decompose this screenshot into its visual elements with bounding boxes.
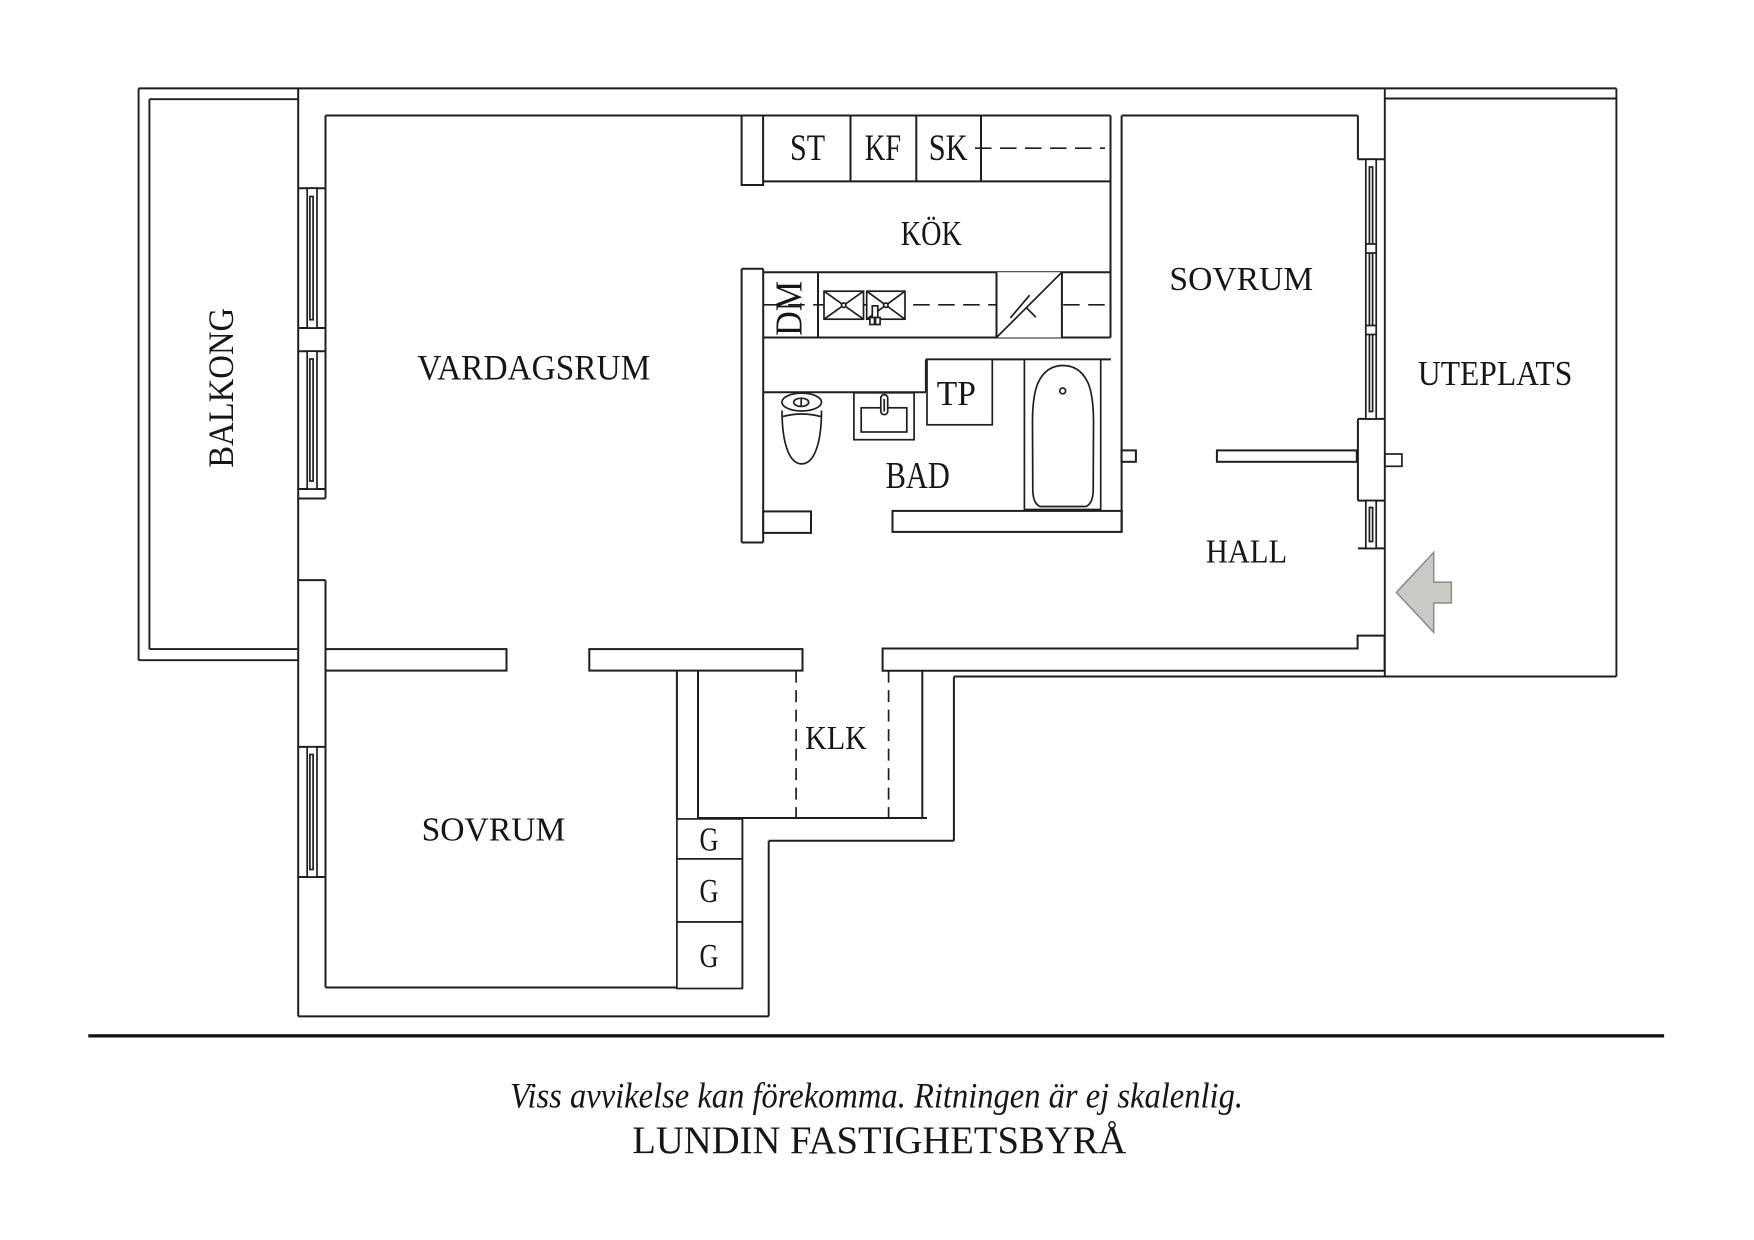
svg-text:TP: TP [937, 374, 976, 413]
svg-text:BALKONG: BALKONG [201, 308, 241, 468]
svg-text:DM: DM [768, 281, 810, 336]
svg-text:SOVRUM: SOVRUM [1169, 261, 1313, 298]
svg-text:HALL: HALL [1206, 534, 1287, 571]
svg-text:LUNDIN FASTIGHETSBYRÅ: LUNDIN FASTIGHETSBYRÅ [632, 1119, 1126, 1162]
svg-text:KÖK: KÖK [901, 214, 962, 253]
svg-text:KLK: KLK [805, 720, 867, 757]
svg-text:VARDAGSRUM: VARDAGSRUM [417, 347, 650, 387]
svg-text:UTEPLATS: UTEPLATS [1418, 354, 1572, 393]
svg-text:G: G [700, 822, 719, 859]
svg-text:KF: KF [865, 128, 901, 169]
svg-text:ST: ST [790, 128, 825, 169]
svg-text:G: G [700, 938, 719, 975]
svg-text:SK: SK [929, 128, 968, 169]
svg-text:G: G [700, 873, 719, 910]
svg-text:BAD: BAD [886, 455, 950, 497]
svg-text:SOVRUM: SOVRUM [422, 812, 566, 849]
svg-text:Viss avvikelse kan förekomma.: Viss avvikelse kan förekomma. Ritningen … [510, 1076, 1243, 1116]
